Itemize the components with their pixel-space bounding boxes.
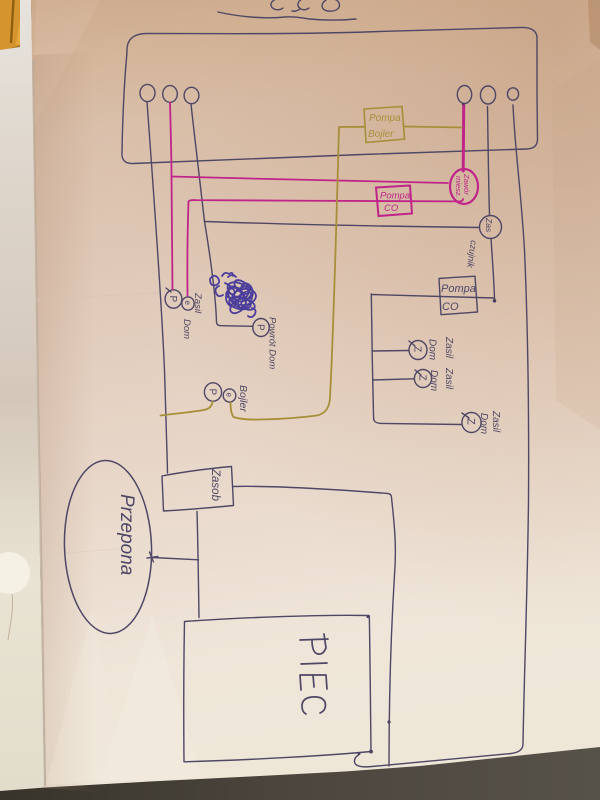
svg-text:Z: Z [465, 418, 477, 425]
svg-text:Pompa: Pompa [380, 191, 410, 202]
svg-text:Dom: Dom [181, 319, 192, 339]
svg-text:Zas: Zas [484, 217, 494, 233]
svg-text:Bojler: Bojler [368, 129, 394, 140]
svg-text:CO: CO [442, 301, 459, 313]
svg-text:e: e [183, 301, 192, 306]
svg-text:CO: CO [384, 203, 399, 214]
svg-text:P: P [167, 296, 178, 303]
svg-text:P: P [207, 389, 218, 396]
svg-text:Zasil: Zasil [490, 410, 501, 433]
svg-text:Dom: Dom [478, 413, 489, 434]
svg-text:Pompa: Pompa [441, 283, 476, 295]
svg-text:Bojler: Bojler [237, 385, 249, 412]
svg-text:Z: Z [412, 346, 423, 352]
svg-text:e: e [225, 393, 234, 398]
svg-text:P: P [255, 324, 266, 331]
svg-text:miesz.: miesz. [454, 176, 463, 198]
svg-text:Z: Z [417, 375, 428, 381]
svg-text:Zasil: Zasil [192, 292, 203, 314]
svg-text:Zasil: Zasil [443, 367, 454, 390]
svg-text:Dom: Dom [427, 339, 438, 360]
svg-text:Zasil: Zasil [443, 336, 454, 359]
svg-text:Pompa: Pompa [369, 113, 401, 124]
svg-text:Przepona: Przepona [116, 494, 137, 575]
svg-text:Dom: Dom [428, 370, 439, 391]
svg-text:Powrót Dom: Powrót Dom [267, 317, 278, 369]
svg-text:Zasob: Zasob [209, 468, 221, 502]
